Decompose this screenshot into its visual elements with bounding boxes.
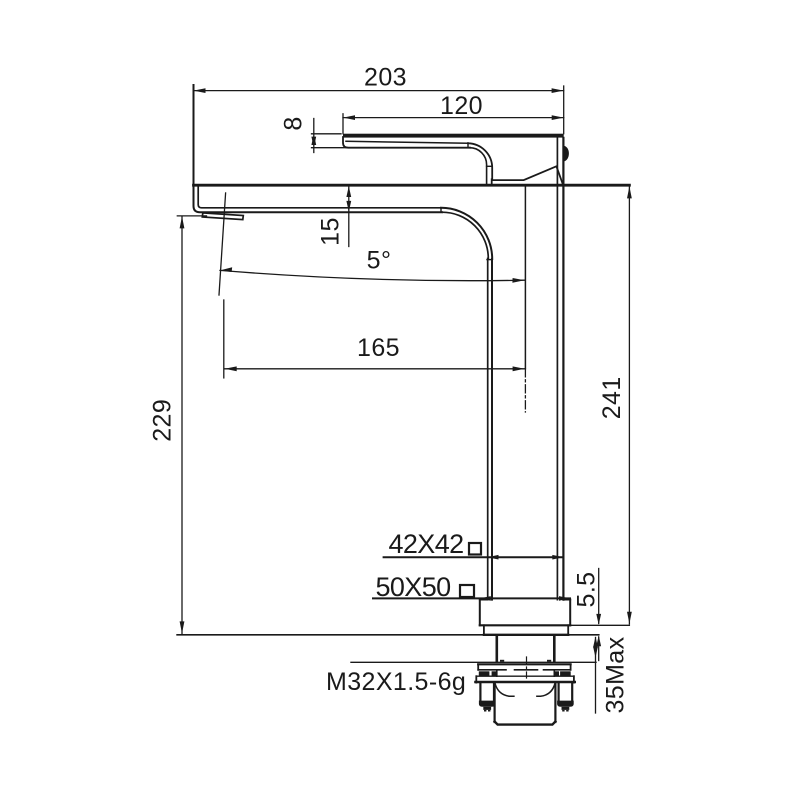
svg-text:165: 165	[357, 334, 400, 362]
svg-text:229: 229	[148, 399, 176, 442]
svg-text:203: 203	[364, 63, 407, 91]
svg-text:5.5: 5.5	[572, 572, 600, 608]
svg-text:5°: 5°	[367, 247, 392, 275]
svg-text:8: 8	[279, 116, 307, 130]
svg-text:241: 241	[598, 376, 626, 419]
svg-text:120: 120	[440, 92, 483, 120]
svg-text:50X50: 50X50	[375, 572, 450, 602]
svg-text:35Max: 35Max	[601, 636, 629, 713]
svg-text:15: 15	[316, 217, 344, 246]
svg-text:M32X1.5-6g: M32X1.5-6g	[326, 668, 466, 696]
svg-text:42X42: 42X42	[388, 529, 463, 559]
